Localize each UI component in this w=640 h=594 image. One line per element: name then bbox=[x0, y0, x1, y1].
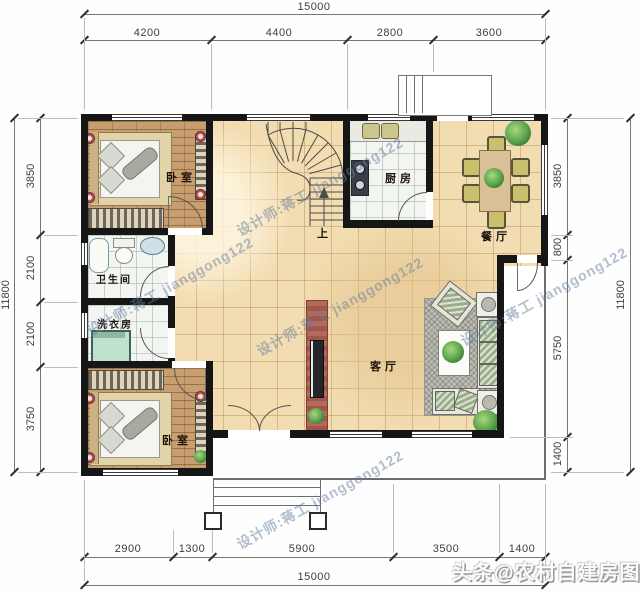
extension-line bbox=[84, 18, 85, 110]
terrace-edge bbox=[213, 478, 546, 480]
bathroom-sink bbox=[140, 237, 165, 255]
back-step bbox=[422, 76, 423, 113]
porch-step bbox=[213, 487, 321, 488]
dim-label: 4200 bbox=[134, 27, 160, 39]
dim-label: 2100 bbox=[25, 246, 37, 290]
dining-chair bbox=[511, 158, 530, 177]
toilet-bowl bbox=[115, 247, 133, 264]
extension-line bbox=[18, 118, 78, 119]
dim-label: 5900 bbox=[289, 543, 315, 555]
room-label-kitchen: 厨房 bbox=[385, 170, 415, 186]
dim-label: 1400 bbox=[509, 543, 535, 555]
window bbox=[103, 469, 178, 476]
dim-label: 2800 bbox=[377, 27, 403, 39]
door-leaf bbox=[517, 263, 518, 290]
extension-line bbox=[18, 472, 78, 473]
extension-line bbox=[499, 484, 500, 553]
door-opening bbox=[168, 328, 175, 358]
dresser-knob bbox=[195, 131, 206, 142]
dining-chair bbox=[487, 210, 506, 229]
table-plant bbox=[484, 168, 504, 188]
window bbox=[330, 431, 382, 438]
porch-stringer bbox=[213, 480, 214, 515]
dim-label: 15000 bbox=[297, 571, 330, 583]
dim-label: 3850 bbox=[25, 154, 37, 198]
dimension-line bbox=[84, 585, 545, 586]
porch-column bbox=[204, 512, 222, 530]
back-platform bbox=[398, 75, 492, 116]
dimension-line bbox=[630, 118, 631, 472]
extension-line bbox=[347, 44, 348, 110]
dim-label: 2100 bbox=[25, 312, 37, 356]
side-table-lamp bbox=[482, 395, 497, 410]
tv bbox=[310, 340, 324, 398]
dim-label: 11800 bbox=[0, 273, 12, 317]
dim-label: 1400 bbox=[552, 432, 564, 476]
window bbox=[412, 431, 472, 438]
side-table-lamp bbox=[481, 297, 496, 312]
extension-line bbox=[212, 530, 213, 553]
dim-label: 11800 bbox=[615, 273, 627, 317]
door-opening bbox=[168, 228, 202, 235]
extension-line bbox=[433, 44, 434, 72]
bathtub bbox=[89, 238, 109, 273]
sofa-cushion bbox=[479, 364, 499, 386]
dimension-line bbox=[84, 40, 545, 41]
dim-label: 3850 bbox=[552, 154, 564, 198]
door-opening bbox=[228, 430, 290, 438]
floor-plan-canvas: 卧室 卧室 厨房 餐厅 卫生间 洗衣房 客厅 上 15000 4200 4400… bbox=[0, 0, 640, 594]
bench-cushion bbox=[435, 391, 455, 411]
armchair-cushion bbox=[437, 287, 471, 320]
dim-label: 800 bbox=[552, 225, 564, 269]
extension-line bbox=[551, 118, 624, 119]
back-step bbox=[414, 76, 415, 113]
dim-label: 3600 bbox=[476, 27, 502, 39]
dimension-line bbox=[84, 14, 545, 15]
dim-label: 1300 bbox=[179, 543, 205, 555]
dim-label: 3500 bbox=[433, 543, 459, 555]
window bbox=[247, 114, 310, 121]
door-opening bbox=[172, 361, 206, 368]
toutiao-badge: 头条@农村自建房图纸 bbox=[452, 556, 640, 585]
coffee-table-plant bbox=[442, 341, 464, 363]
kitchen-sink-basin bbox=[362, 123, 380, 139]
wardrobe bbox=[88, 370, 164, 390]
window bbox=[541, 145, 548, 215]
dining-chair bbox=[511, 184, 530, 203]
wardrobe bbox=[88, 208, 164, 229]
dim-label: 2900 bbox=[115, 543, 141, 555]
extension-line bbox=[510, 437, 573, 438]
wall bbox=[81, 114, 88, 476]
window bbox=[112, 114, 182, 121]
extension-line bbox=[551, 472, 624, 473]
extension-line bbox=[173, 530, 174, 553]
wall bbox=[206, 361, 213, 476]
dimension-line bbox=[40, 118, 41, 472]
extension-line bbox=[44, 367, 78, 368]
extension-line bbox=[545, 18, 546, 110]
wall bbox=[497, 255, 504, 438]
extension-line bbox=[211, 44, 212, 110]
extension-line bbox=[393, 484, 394, 553]
door-leaf bbox=[205, 368, 206, 400]
extension-line bbox=[44, 302, 78, 303]
extension-line bbox=[44, 235, 78, 236]
extension-line bbox=[551, 235, 573, 236]
door-leaf bbox=[168, 196, 169, 228]
corner-plant bbox=[505, 120, 531, 146]
room-label-dining: 餐厅 bbox=[481, 228, 511, 244]
tv-plant bbox=[308, 408, 324, 424]
dim-label: 3750 bbox=[25, 397, 37, 441]
extension-line bbox=[551, 260, 573, 261]
wall bbox=[343, 220, 433, 228]
room-label-bedroom2: 卧室 bbox=[162, 432, 192, 448]
door-opening bbox=[517, 255, 537, 263]
dresser-knob bbox=[195, 189, 206, 200]
stove-burner bbox=[355, 180, 365, 190]
room-label-living: 客厅 bbox=[370, 358, 400, 374]
back-step bbox=[406, 76, 407, 113]
extension-line bbox=[84, 480, 85, 581]
dim-tick bbox=[626, 467, 635, 476]
window bbox=[81, 243, 88, 265]
dimension-line bbox=[14, 118, 15, 472]
sofa-cushion bbox=[479, 342, 499, 364]
door-opening bbox=[426, 192, 433, 220]
wall bbox=[206, 114, 213, 235]
stair-up-label: 上 bbox=[317, 225, 328, 241]
designer-watermark: 设计师:蒋工 jianggong122 bbox=[233, 445, 407, 554]
dim-label: 4400 bbox=[266, 27, 292, 39]
dim-label: 5750 bbox=[552, 326, 564, 370]
room-label-bath: 卫生间 bbox=[96, 271, 132, 286]
room-label-bedroom1: 卧室 bbox=[166, 169, 196, 185]
dim-label: 15000 bbox=[297, 1, 330, 13]
